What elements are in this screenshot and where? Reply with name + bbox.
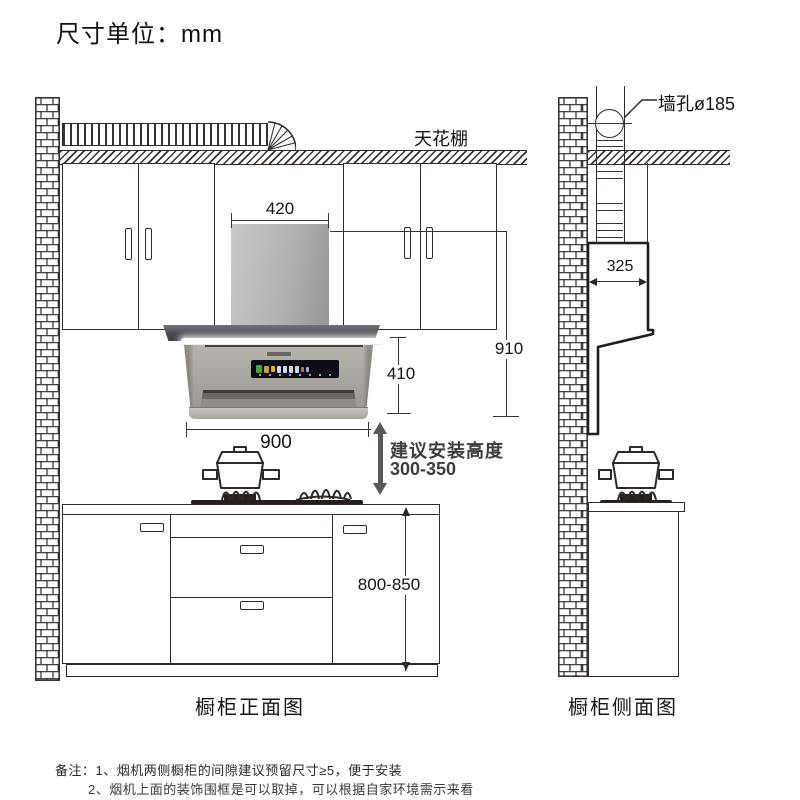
dim-chimney-width-label: 420 — [246, 200, 314, 219]
cabinet-door-divider — [138, 164, 139, 329]
hood-base — [189, 407, 368, 419]
hood-light-strip — [181, 338, 383, 344]
display-digit — [295, 366, 299, 373]
front-view-caption: 橱柜正面图 — [180, 691, 320, 720]
install-arrow-down-icon — [373, 483, 387, 495]
cabinet-door-handle — [145, 228, 152, 260]
cabinet-door-divider — [420, 164, 421, 329]
display-green-indicator — [256, 365, 262, 373]
pot-icon — [203, 447, 279, 488]
cabinet-divider — [332, 515, 333, 663]
hood-display-panel — [251, 360, 339, 378]
countertop-front — [62, 504, 440, 515]
duct-elbow-icon — [266, 120, 296, 152]
dim-tick — [493, 416, 519, 417]
cabinet-door-handle — [140, 523, 164, 532]
display-digit — [283, 366, 287, 373]
side-view-caption: 橱柜侧面图 — [553, 691, 693, 720]
display-dot — [306, 367, 309, 372]
install-arrow-shaft — [378, 433, 383, 484]
ceiling-hatch-side — [588, 150, 730, 165]
burner-grate-icon — [300, 490, 351, 499]
pot-icon — [599, 447, 673, 488]
installation-diagram: 尺寸单位：mm 天花棚 420 910 — [0, 0, 800, 800]
brick-wall-left — [35, 97, 60, 681]
display-dots-row — [259, 374, 331, 376]
brick-wall-side — [558, 97, 588, 677]
dim-chimney-depth-line — [592, 281, 644, 282]
cabinet-door-handle — [125, 228, 132, 260]
display-dot — [301, 367, 304, 372]
drawer-divider — [170, 597, 332, 598]
upper-cabinet-left — [62, 163, 215, 330]
upper-cabinet-right — [343, 163, 497, 330]
hood-seam-line — [205, 345, 363, 347]
dim-chimney-depth-label: 325 — [599, 258, 641, 276]
notes-line2: 2、烟机上面的装饰围框是可以取掉，可以根据自家环境需示来看 — [88, 779, 474, 798]
wall-hole-centerline — [588, 123, 632, 124]
page-title: 尺寸单位：mm — [56, 14, 223, 49]
install-height-value: 300-350 — [390, 459, 456, 480]
exhaust-duct — [62, 123, 268, 146]
dim-hood-width-line — [186, 429, 368, 430]
display-amber-indicator — [264, 366, 269, 373]
side-outline-line — [647, 163, 648, 243]
dim-overall-height-line — [506, 231, 507, 417]
dim-counter-height-label: 800-850 — [349, 576, 429, 595]
gas-stove-side — [593, 446, 681, 508]
dim-chimney-width-line — [231, 220, 329, 221]
dim-arrow-down-icon — [402, 662, 410, 671]
dim-arrow-up-icon — [402, 507, 410, 516]
wall-hole-label: 墙孔ø185 — [658, 90, 735, 116]
hood-chimney — [231, 224, 329, 330]
dim-overall-height-label: 910 — [486, 340, 532, 359]
display-digit — [289, 366, 293, 373]
plinth-front — [66, 664, 438, 677]
gas-stove-front — [188, 446, 366, 508]
notes-line1: 备注：1、烟机两侧橱柜的间隙建议预留尺寸≥5，便于安装 — [55, 760, 402, 779]
drawer-divider — [170, 537, 332, 538]
hood-brand-mark — [267, 352, 291, 356]
dim-hood-height-label: 410 — [379, 365, 423, 384]
dim-arrow-left-icon — [589, 278, 597, 286]
display-amber-indicator — [271, 366, 275, 372]
dim-arrow-right-icon — [639, 278, 647, 286]
countertop-side — [588, 502, 685, 512]
dim-extension-line — [330, 231, 507, 232]
display-digit — [277, 366, 281, 373]
drawer-handle — [240, 545, 264, 554]
leader-line — [622, 92, 658, 120]
drawer-handle — [240, 601, 264, 610]
hood-suction-slot — [200, 390, 357, 408]
dim-tick — [357, 429, 371, 430]
ceiling-label: 天花棚 — [414, 125, 468, 151]
cabinet-door-handle — [343, 525, 367, 534]
base-cabinet-side — [588, 512, 679, 677]
dim-tick — [387, 413, 411, 414]
